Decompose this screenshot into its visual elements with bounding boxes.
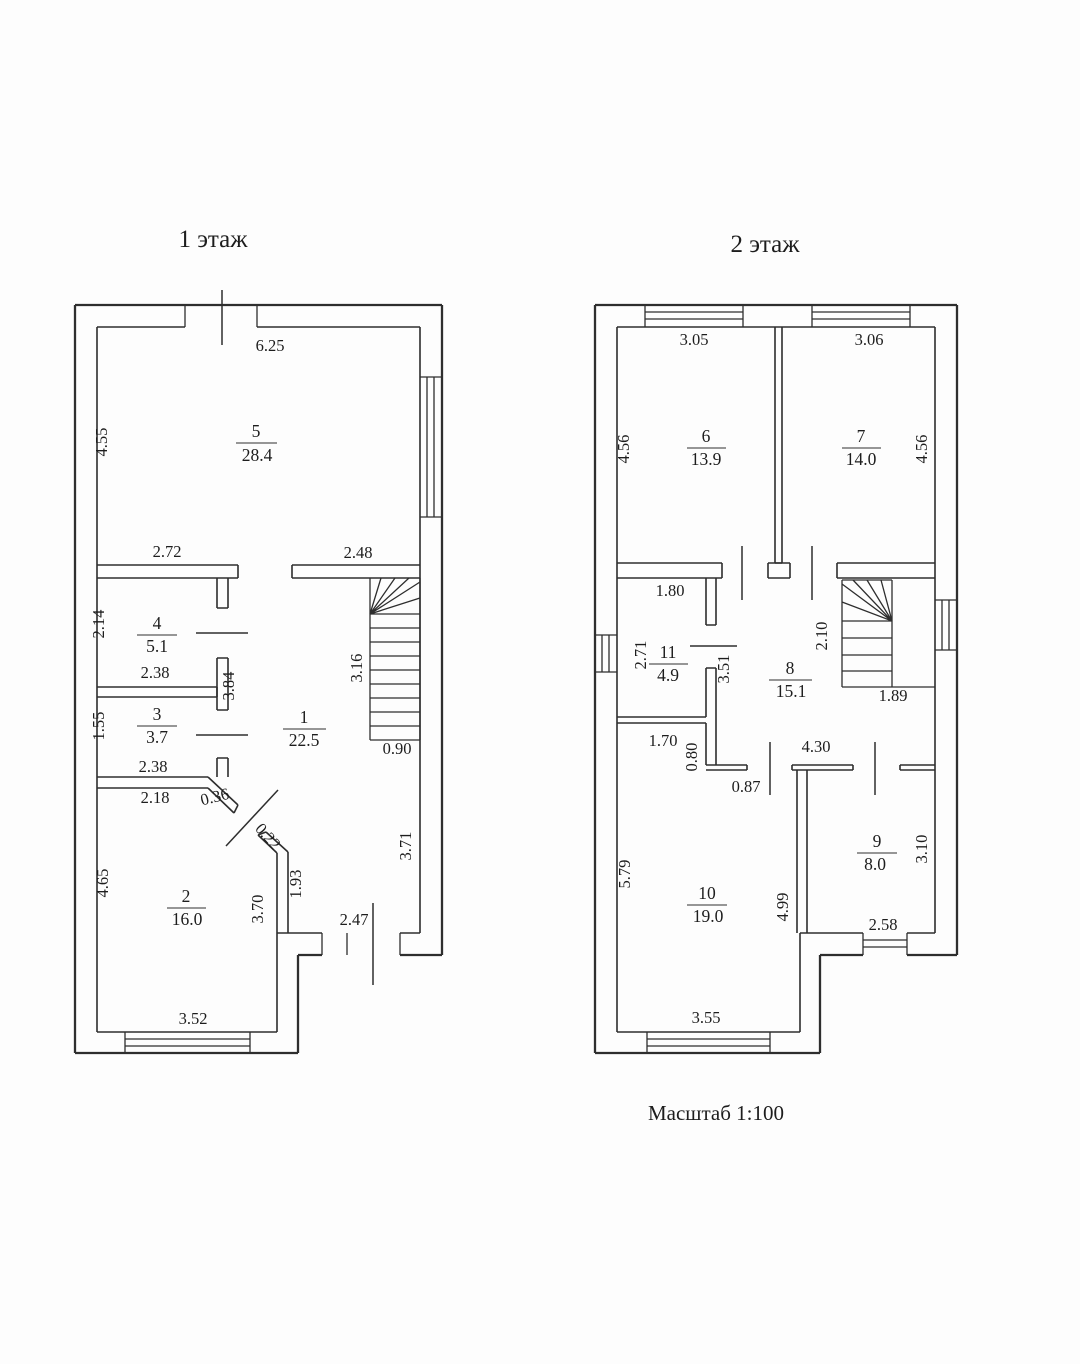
floor2-dim-door-087: 0.87	[732, 777, 761, 796]
floor2-outer-walls	[595, 305, 957, 1053]
floor2-dim-seg-080: 0.80	[682, 743, 701, 772]
floor2-plan: 2 этаж 3.05 3.06 4.56 4.56 6 13.9 7 14.0…	[595, 231, 957, 1053]
floor1-room2-window	[125, 1032, 250, 1053]
floor1-dim-top-width: 6.25	[256, 336, 285, 355]
floor1-room5-area: 28.4	[242, 445, 273, 465]
floor2-room6-window	[645, 305, 743, 327]
floor1-openings	[125, 290, 442, 1053]
floor2-dim-r11-width: 1.80	[656, 581, 685, 600]
floor1-room4-area: 5.1	[146, 636, 168, 656]
floor2-room11-window	[595, 635, 617, 672]
floor2-room9-area: 8.0	[864, 854, 886, 874]
floor1-room2-area: 16.0	[172, 909, 203, 929]
floor2-room8-area: 15.1	[776, 681, 807, 701]
floor2-room10-area: 19.0	[693, 906, 724, 926]
floor2-dim-stairs-height: 2.10	[812, 622, 831, 651]
floor1-room5-number: 5	[252, 421, 261, 441]
floor2-room-label-rules	[649, 448, 897, 905]
floor2-dim-r7-height: 4.56	[912, 435, 931, 464]
floor2-title: 2 этаж	[730, 231, 800, 258]
floor2-stairs	[842, 580, 935, 687]
floor1-dim-r2-height: 4.65	[93, 869, 112, 898]
floor2-dim-r6-height: 4.56	[614, 435, 633, 464]
floor1-plan: 1 этаж 5 28.4 6.25 4.55 2.72 2.48 2.14 4…	[75, 226, 442, 1053]
floor1-room3-area: 3.7	[146, 727, 168, 747]
floor1-room3-number: 3	[153, 704, 162, 724]
floor2-partitions	[617, 327, 935, 933]
floor1-room2-number: 2	[182, 886, 191, 906]
floor-plan-page: 1 этаж 5 28.4 6.25 4.55 2.72 2.48 2.14 4…	[0, 0, 1080, 1364]
floor1-dim-wall-371: 3.71	[396, 832, 415, 861]
floor2-dim-r6-width: 3.05	[680, 330, 709, 349]
floor1-room4-number: 4	[153, 613, 162, 633]
floor2-room10-window	[647, 1032, 770, 1053]
floor2-room8-number: 8	[786, 658, 795, 678]
floor2-room6-number: 6	[702, 426, 711, 446]
floor2-dim-seg-170: 1.70	[649, 731, 678, 750]
floor-plan-drawing: 1 этаж 5 28.4 6.25 4.55 2.72 2.48 2.14 4…	[0, 0, 1080, 1364]
floor2-room7-area: 14.0	[846, 449, 877, 469]
floor2-dim-hall-width: 4.30	[802, 737, 831, 756]
floor1-stairs	[370, 578, 420, 740]
floor1-dim-seg-218: 2.18	[141, 788, 170, 807]
floor1-dim-stairs-width: 0.90	[383, 739, 412, 758]
floor1-partitions	[97, 565, 420, 933]
floor1-title: 1 этаж	[178, 226, 248, 253]
floor2-openings	[595, 305, 957, 1053]
floor1-dim-entry-width: 2.47	[340, 910, 369, 929]
floor2-dim-wall-351: 3.51	[714, 655, 733, 684]
floor1-room1-area: 22.5	[289, 730, 320, 750]
floor2-dim-stairs-width: 1.89	[879, 686, 908, 705]
floor2-room7-number: 7	[857, 426, 866, 446]
floor1-dim-wall-272: 2.72	[153, 542, 182, 561]
scale-note: Масштаб 1:100	[648, 1101, 784, 1125]
floor1-dim-seg-022: 0.22	[251, 819, 284, 853]
floor2-room11-area: 4.9	[657, 665, 679, 685]
floor1-dim-r5-height: 4.55	[92, 428, 111, 457]
floor2-stair-window	[935, 600, 957, 650]
floor2-room11-number: 11	[660, 642, 677, 662]
floor2-room9-number: 9	[873, 831, 882, 851]
floor1-dim-r4-width: 2.38	[141, 663, 170, 682]
floor1-dim-wall-248: 2.48	[344, 543, 373, 562]
floor2-dim-r10-width: 3.55	[692, 1008, 721, 1027]
floor1-outer-walls	[75, 305, 442, 1053]
floor1-dim-wall-384: 3.84	[219, 672, 238, 701]
floor1-dim-stairs-height: 3.16	[347, 654, 366, 683]
floor2-dim-r11-height: 2.71	[631, 641, 650, 670]
floor1-dim-wall-193: 1.93	[286, 870, 305, 899]
floor1-dim-r3-width: 2.38	[139, 757, 168, 776]
floor2-room7-window	[812, 305, 910, 327]
floor2-room9-window	[863, 933, 907, 955]
floor1-dim-r2-width: 3.52	[179, 1009, 208, 1028]
floor2-room6-area: 13.9	[691, 449, 722, 469]
floor1-dim-wall-370: 3.70	[248, 895, 267, 924]
floor1-right-window	[420, 377, 442, 517]
floor1-room1-number: 1	[300, 707, 309, 727]
floor1-dim-r4-height: 2.14	[89, 610, 108, 639]
floor2-dim-r10-height: 5.79	[615, 860, 634, 889]
floor2-room10-number: 10	[698, 883, 716, 903]
floor2-dim-wall-499: 4.99	[773, 893, 792, 922]
floor2-dim-r7-width: 3.06	[855, 330, 884, 349]
floor1-dim-r3-height: 1.55	[89, 712, 108, 741]
floor2-dim-r9-width: 2.58	[869, 915, 898, 934]
floor2-dim-r9-height: 3.10	[912, 835, 931, 864]
